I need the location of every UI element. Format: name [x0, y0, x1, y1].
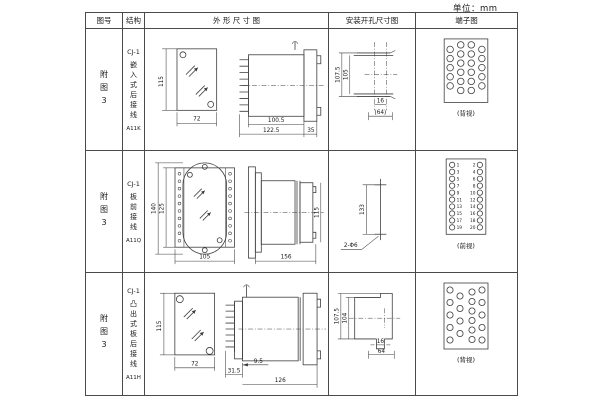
dim-inner-h: 125: [160, 203, 166, 214]
terminal-grid-back1: [447, 42, 485, 94]
dim-body-length: 126: [275, 378, 286, 384]
terminal-grid-front: 1357911131517192468101214161820: [449, 162, 482, 231]
svg-text:11: 11: [457, 197, 463, 203]
svg-text:18: 18: [470, 218, 476, 224]
dim-front-height: 115: [157, 320, 163, 331]
row1-code: A11K: [126, 126, 140, 132]
outline-drawing-a11k: 115 72 100.5 122.5 35: [145, 29, 328, 150]
svg-text:20: 20: [470, 225, 476, 231]
dim-mount-span: (64): [375, 110, 387, 116]
svg-text:13: 13: [457, 204, 463, 210]
svg-text:16: 16: [470, 211, 476, 217]
svg-text:4: 4: [473, 170, 476, 176]
dim-mount-slot-w: 16: [377, 98, 385, 104]
svg-text:9: 9: [457, 190, 460, 196]
seal-arrow-icon: [194, 189, 211, 221]
row2-terminal-drawing: 1357911131517192468101214161820 (前视): [416, 151, 517, 273]
terminal-grid-back3: [447, 287, 485, 343]
header-mounting-dims: 安装开孔尺寸图: [329, 13, 416, 29]
header-structure: 结构: [123, 13, 145, 29]
row2-outline-drawing: 140 125 105 156 115: [145, 151, 329, 273]
svg-text:5: 5: [457, 176, 460, 182]
svg-text:10: 10: [470, 190, 476, 196]
dim-total-length: 122.5: [263, 128, 280, 134]
svg-text:3: 3: [457, 170, 460, 176]
terminal-dots: [178, 172, 231, 242]
dim-body-length: 156: [281, 255, 292, 261]
terminal-caption: (前视): [457, 241, 475, 250]
header-outline-dims: 外 形 尺 寸 图: [145, 13, 329, 29]
mounting-drawing-a11k: 107.5 105 16 (64): [329, 29, 415, 150]
dim-mount-inner-v: 104: [342, 312, 348, 323]
dim-hole-span: 133: [360, 204, 366, 215]
row3-structure-desc: 凸出式板后接线: [129, 300, 139, 370]
dim-mount-outer-v: 107.5: [335, 66, 341, 83]
header-terminal-diagram: 端子图: [416, 13, 517, 29]
svg-text:12: 12: [470, 197, 476, 203]
row3-outline-drawing: 115 72 31.5 9.5 126: [145, 273, 329, 395]
spec-table: 图号 结构 外 形 尺 寸 图 安装开孔尺寸图 端子图 附图3 CJ-1 嵌入式…: [85, 12, 518, 396]
svg-text:6: 6: [473, 176, 476, 182]
seal-arrow-icon: [184, 308, 204, 341]
row3-fig-no: 附图3: [86, 273, 123, 395]
row1-outline-drawing: 115 72 100.5 122.5 35: [145, 29, 329, 151]
outline-drawing-a11q: 140 125 105 156 115: [145, 151, 328, 272]
dim-stem-length: 9.5: [254, 359, 263, 365]
dim-body-length: 100.5: [268, 118, 285, 124]
dim-outer-h: 140: [152, 203, 158, 214]
dim-side-height: 115: [314, 207, 320, 218]
outline-drawing-a11h: 115 72 31.5 9.5 126: [145, 273, 328, 395]
row3-model: CJ-1: [127, 287, 140, 295]
mounting-drawing-a11q: 133 2-Φ6: [329, 151, 415, 272]
svg-text:17: 17: [457, 218, 463, 224]
svg-text:14: 14: [470, 204, 476, 210]
row1-structure-desc: 嵌入式后接线: [129, 61, 139, 121]
dim-front-height: 115: [159, 76, 165, 87]
terminal-drawing-a11h: (背视): [416, 273, 517, 395]
row2-mounting-drawing: 133 2-Φ6: [329, 151, 416, 273]
dim-front-width: 72: [191, 361, 199, 367]
dim-mount-outer-v: 107.5: [334, 308, 340, 325]
row1-fig-no: 附图3: [86, 29, 123, 151]
dim-mount-inner-v: 105: [343, 69, 349, 80]
svg-text:7: 7: [457, 183, 460, 189]
svg-text:8: 8: [473, 183, 476, 189]
svg-text:2: 2: [473, 163, 476, 169]
seal-arrow-icon: [186, 66, 208, 97]
svg-text:1: 1: [457, 163, 460, 169]
row1-model: CJ-1: [127, 48, 140, 56]
row3-terminal-drawing: (背视): [416, 273, 517, 395]
dim-mount-slot-w: 16: [377, 339, 385, 345]
header-fig-no: 图号: [86, 13, 123, 29]
svg-text:19: 19: [457, 225, 463, 231]
dim-pin-length: 31.5: [228, 368, 241, 374]
terminal-drawing-a11q: 1357911131517192468101214161820 (前视): [416, 151, 517, 272]
terminal-caption: (背视): [457, 108, 475, 117]
row1-structure: CJ-1 嵌入式后接线 A11K: [123, 29, 145, 151]
terminal-drawing-a11k: (背视): [416, 29, 517, 150]
terminal-caption: (背视): [457, 355, 475, 364]
row3-mounting-drawing: 107.5 104 16 64: [329, 273, 416, 395]
dim-flange-length: 35: [307, 128, 315, 134]
row2-structure-desc: 板前接线: [129, 193, 139, 233]
row3-code: A11H: [126, 375, 141, 381]
dim-front-width: 72: [193, 117, 201, 123]
row2-model: CJ-1: [127, 180, 140, 188]
dim-front-width: 105: [199, 255, 210, 261]
row2-code: A11Q: [126, 238, 141, 244]
svg-text:15: 15: [457, 211, 463, 217]
row1-terminal-drawing: (背视): [416, 29, 517, 151]
dim-mount-span: 64: [378, 349, 386, 355]
hole-label: 2-Φ6: [344, 243, 358, 249]
row2-fig-no: 附图3: [86, 151, 123, 273]
mounting-drawing-a11h: 107.5 104 16 64: [329, 273, 415, 395]
row2-structure: CJ-1 板前接线 A11Q: [123, 151, 145, 273]
row1-mounting-drawing: 107.5 105 16 (64): [329, 29, 416, 151]
row3-structure: CJ-1 凸出式板后接线 A11H: [123, 273, 145, 395]
